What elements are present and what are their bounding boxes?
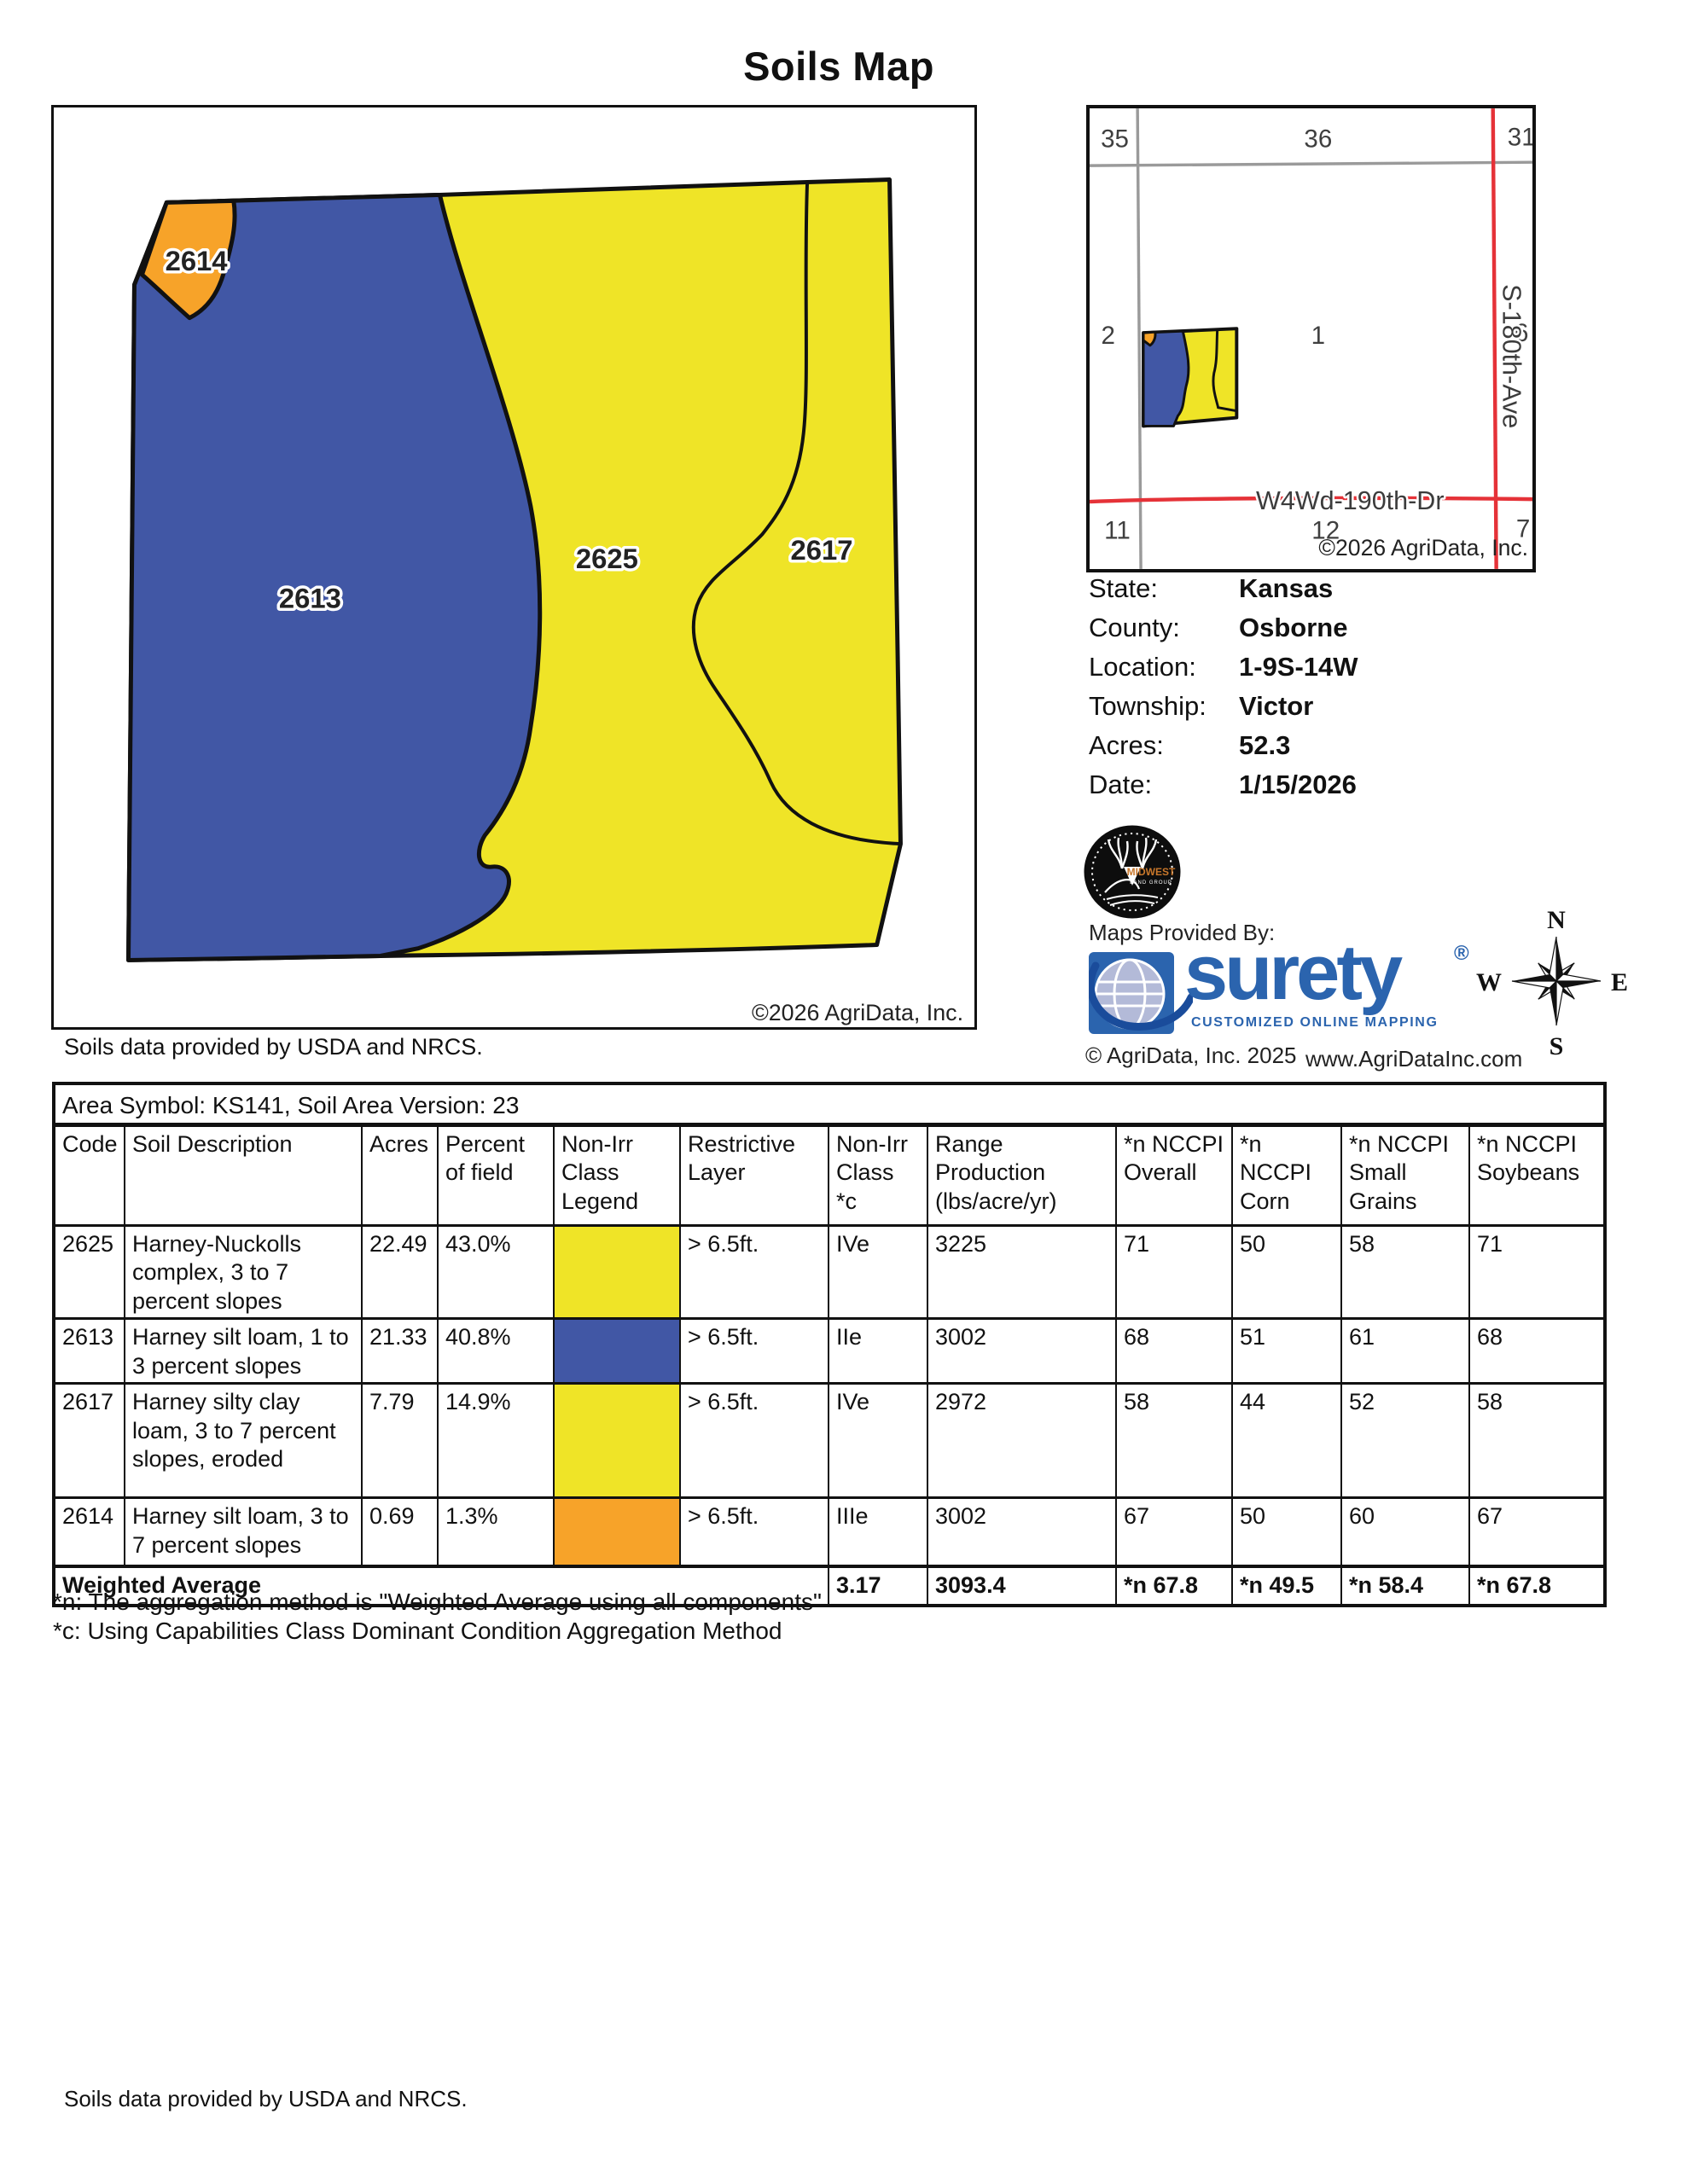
cell-restrictive: > 6.5ft. bbox=[680, 1498, 829, 1566]
cell-percent: 43.0% bbox=[438, 1225, 554, 1318]
surety-tagline: CUSTOMIZED ONLINE MAPPING bbox=[1191, 1015, 1439, 1031]
cell-code: 2617 bbox=[54, 1384, 125, 1498]
cell-acres: 21.33 bbox=[362, 1319, 438, 1384]
cell-acres: 22.49 bbox=[362, 1225, 438, 1318]
weighted-nccpi-corn: *n 49.5 bbox=[1232, 1566, 1341, 1606]
cell-percent: 1.3% bbox=[438, 1498, 554, 1566]
cell-range-production: 3002 bbox=[927, 1319, 1116, 1384]
info-label-state: State: bbox=[1089, 573, 1239, 604]
parcel-info-block: State: Kansas County: Osborne Location: … bbox=[1089, 573, 1532, 809]
midwest-land-group-logo: MIDWEST LAND GROUP bbox=[1083, 824, 1182, 920]
cell-nccpi-overall: 71 bbox=[1116, 1225, 1232, 1318]
cell-restrictive: > 6.5ft. bbox=[680, 1319, 829, 1384]
soils-map-panel: 2614 2613 2625 2617 ©2026 AgriData, Inc. bbox=[51, 105, 977, 1030]
footnote-aggregation-method: *n: The aggregation method is "Weighted … bbox=[53, 1589, 822, 1616]
cell-nonirr-class: IVe bbox=[829, 1225, 927, 1318]
deer-logo-icon: MIDWEST LAND GROUP bbox=[1083, 824, 1182, 920]
cell-nccpi-soybeans: 58 bbox=[1469, 1384, 1605, 1498]
cell-nccpi-small-grains: 61 bbox=[1341, 1319, 1469, 1384]
cell-nccpi-soybeans: 68 bbox=[1469, 1319, 1605, 1384]
info-row-acres: Acres: 52.3 bbox=[1089, 730, 1532, 770]
column-header-restrictive-layer: Restrictive Layer bbox=[680, 1124, 829, 1225]
map-copyright: ©2026 AgriData, Inc. bbox=[752, 1000, 963, 1025]
agridata-copyright: © AgriData, Inc. 2025 bbox=[1085, 1043, 1297, 1069]
compass-s-label: S bbox=[1550, 1032, 1564, 1060]
info-row-township: Township: Victor bbox=[1089, 691, 1532, 730]
table-row-2617: 2617 Harney silty clay loam, 3 to 7 perc… bbox=[54, 1384, 1605, 1498]
table-header-row: Code Soil Description Acres Percent of f… bbox=[54, 1124, 1605, 1225]
cell-range-production: 3002 bbox=[927, 1498, 1116, 1566]
cell-nccpi-overall: 67 bbox=[1116, 1498, 1232, 1566]
cell-description: Harney silty clay loam, 3 to 7 percent s… bbox=[125, 1384, 362, 1498]
info-label-township: Township: bbox=[1089, 691, 1239, 722]
field-thumbnail bbox=[1143, 328, 1236, 426]
surety-wordmark: surety bbox=[1184, 928, 1399, 1018]
legend-swatch-2625 bbox=[554, 1225, 680, 1318]
section-number-35: 35 bbox=[1101, 125, 1129, 153]
cell-description: Harney-Nuckolls complex, 3 to 7 percent … bbox=[125, 1225, 362, 1318]
legend-swatch-2613 bbox=[554, 1319, 680, 1384]
info-row-county: County: Osborne bbox=[1089, 613, 1532, 652]
column-header-percent-of-field: Percent of field bbox=[438, 1124, 554, 1225]
cell-percent: 40.8% bbox=[438, 1319, 554, 1384]
column-header-acres: Acres bbox=[362, 1124, 438, 1225]
info-value-township: Victor bbox=[1239, 691, 1313, 722]
info-value-state: Kansas bbox=[1239, 573, 1333, 604]
soils-table-wrapper: Area Symbol: KS141, Soil Area Version: 2… bbox=[52, 1082, 1607, 1607]
column-header-soil-description: Soil Description bbox=[125, 1124, 362, 1225]
table-row-2613: 2613 Harney silt loam, 1 to 3 percent sl… bbox=[54, 1319, 1605, 1384]
cell-nonirr-class: IIe bbox=[829, 1319, 927, 1384]
cell-range-production: 3225 bbox=[927, 1225, 1116, 1318]
compass-e-label: E bbox=[1611, 968, 1628, 996]
cell-code: 2614 bbox=[54, 1498, 125, 1566]
cell-nonirr-class: IIIe bbox=[829, 1498, 927, 1566]
locator-map-panel: 35 36 31 2 1 6 11 12 7 W4Wd-190th-Dr S-1… bbox=[1086, 105, 1536, 572]
cell-acres: 7.79 bbox=[362, 1384, 438, 1498]
road-w4wd-190th-dr-label: W4Wd-190th-Dr bbox=[1256, 486, 1444, 515]
cell-nccpi-soybeans: 71 bbox=[1469, 1225, 1605, 1318]
surety-logo: surety ® CUSTOMIZED ONLINE MAPPING bbox=[1089, 947, 1490, 1049]
info-row-location: Location: 1-9S-14W bbox=[1089, 652, 1532, 691]
page-title: Soils Map bbox=[0, 43, 1677, 90]
column-header-nccpi-overall: *n NCCPI Overall bbox=[1116, 1124, 1232, 1225]
section-number-2: 2 bbox=[1101, 322, 1114, 350]
section-number-31: 31 bbox=[1508, 123, 1532, 151]
surety-globe-icon bbox=[1089, 950, 1193, 1036]
weighted-nccpi-overall: *n 67.8 bbox=[1116, 1566, 1232, 1606]
road-s-180th-ave-label: S-180th-Ave bbox=[1497, 284, 1526, 428]
cell-nccpi-soybeans: 67 bbox=[1469, 1498, 1605, 1566]
section-number-11: 11 bbox=[1104, 516, 1131, 544]
soils-map-report-page: Soils Map 2614 2613 2625 2617 ©2026 Agri… bbox=[0, 0, 1692, 2184]
cell-nccpi-overall: 58 bbox=[1116, 1384, 1232, 1498]
map-usda-note: Soils data provided by USDA and NRCS. bbox=[64, 1034, 483, 1060]
info-row-date: Date: 1/15/2026 bbox=[1089, 770, 1532, 809]
cell-description: Harney silt loam, 3 to 7 percent slopes bbox=[125, 1498, 362, 1566]
cell-nccpi-small-grains: 52 bbox=[1341, 1384, 1469, 1498]
info-label-county: County: bbox=[1089, 613, 1239, 643]
compass-rose: N E S W bbox=[1471, 903, 1642, 1060]
column-header-range-production: Range Production (lbs/acre/yr) bbox=[927, 1124, 1116, 1225]
column-header-legend: Non-Irr Class Legend bbox=[554, 1124, 680, 1225]
area-symbol-text: Area Symbol: KS141, Soil Area Version: 2… bbox=[54, 1083, 1605, 1124]
compass-n-label: N bbox=[1547, 906, 1566, 934]
compass-cardinal-points bbox=[1512, 937, 1601, 1025]
gray-road-horizontal bbox=[1090, 162, 1532, 166]
soils-map-drawing: 2614 2613 2625 2617 ©2026 AgriData, Inc. bbox=[54, 107, 974, 1027]
column-header-nccpi-corn: *n NCCPI Corn bbox=[1232, 1124, 1341, 1225]
cell-nonirr-class: IVe bbox=[829, 1384, 927, 1498]
cell-nccpi-corn: 44 bbox=[1232, 1384, 1341, 1498]
table-row-2625: 2625 Harney-Nuckolls complex, 3 to 7 per… bbox=[54, 1225, 1605, 1318]
midwest-logo-text: MIDWEST bbox=[1127, 866, 1176, 878]
cell-nccpi-small-grains: 60 bbox=[1341, 1498, 1469, 1566]
soil-label-2613: 2613 bbox=[279, 583, 341, 614]
column-header-nonirr-class: Non-Irr Class *c bbox=[829, 1124, 927, 1225]
soil-label-2617: 2617 bbox=[791, 534, 853, 566]
info-value-location: 1-9S-14W bbox=[1239, 652, 1358, 682]
info-value-acres: 52.3 bbox=[1239, 730, 1290, 761]
weighted-nccpi-small-grains: *n 58.4 bbox=[1341, 1566, 1469, 1606]
soils-table: Area Symbol: KS141, Soil Area Version: 2… bbox=[52, 1082, 1607, 1607]
cell-nccpi-small-grains: 58 bbox=[1341, 1225, 1469, 1318]
cell-restrictive: > 6.5ft. bbox=[680, 1225, 829, 1318]
compass-w-label: W bbox=[1476, 968, 1502, 996]
soil-label-2614: 2614 bbox=[166, 245, 229, 276]
table-row-2614: 2614 Harney silt loam, 3 to 7 percent sl… bbox=[54, 1498, 1605, 1566]
compass-rose-icon: N E S W bbox=[1471, 903, 1642, 1060]
info-label-acres: Acres: bbox=[1089, 730, 1239, 761]
locator-copyright: ©2026 AgriData, Inc. bbox=[1318, 535, 1528, 561]
column-header-nccpi-soybeans: *n NCCPI Soybeans bbox=[1469, 1124, 1605, 1225]
cell-percent: 14.9% bbox=[438, 1384, 554, 1498]
legend-swatch-2614 bbox=[554, 1498, 680, 1566]
legend-swatch-2617 bbox=[554, 1384, 680, 1498]
section-number-1: 1 bbox=[1311, 322, 1325, 350]
registered-trademark-symbol: ® bbox=[1454, 942, 1469, 966]
cell-nccpi-overall: 68 bbox=[1116, 1319, 1232, 1384]
cell-nccpi-corn: 50 bbox=[1232, 1225, 1341, 1318]
info-value-county: Osborne bbox=[1239, 613, 1347, 643]
locator-map-drawing: 35 36 31 2 1 6 11 12 7 W4Wd-190th-Dr S-1… bbox=[1090, 108, 1532, 569]
cell-nccpi-corn: 51 bbox=[1232, 1319, 1341, 1384]
column-header-nccpi-small-grains: *n NCCPI Small Grains bbox=[1341, 1124, 1469, 1225]
cell-code: 2625 bbox=[54, 1225, 125, 1318]
footer-usda-note: Soils data provided by USDA and NRCS. bbox=[64, 2086, 468, 2112]
cell-description: Harney silt loam, 1 to 3 percent slopes bbox=[125, 1319, 362, 1384]
weighted-nonirr-class: 3.17 bbox=[829, 1566, 927, 1606]
info-value-date: 1/15/2026 bbox=[1239, 770, 1357, 800]
cell-nccpi-corn: 50 bbox=[1232, 1498, 1341, 1566]
cell-acres: 0.69 bbox=[362, 1498, 438, 1566]
cell-restrictive: > 6.5ft. bbox=[680, 1384, 829, 1498]
cell-code: 2613 bbox=[54, 1319, 125, 1384]
section-number-36: 36 bbox=[1304, 125, 1332, 153]
info-label-location: Location: bbox=[1089, 652, 1239, 682]
weighted-nccpi-soybeans: *n 67.8 bbox=[1469, 1566, 1605, 1606]
info-row-state: State: Kansas bbox=[1089, 573, 1532, 613]
column-header-code: Code bbox=[54, 1124, 125, 1225]
midwest-logo-subtext: LAND GROUP bbox=[1130, 880, 1172, 886]
footnote-capabilities-class: *c: Using Capabilities Class Dominant Co… bbox=[53, 1618, 782, 1645]
soil-label-2625: 2625 bbox=[576, 543, 638, 574]
weighted-range-production: 3093.4 bbox=[927, 1566, 1116, 1606]
area-symbol-row: Area Symbol: KS141, Soil Area Version: 2… bbox=[54, 1083, 1605, 1124]
cell-range-production: 2972 bbox=[927, 1384, 1116, 1498]
info-label-date: Date: bbox=[1089, 770, 1239, 800]
